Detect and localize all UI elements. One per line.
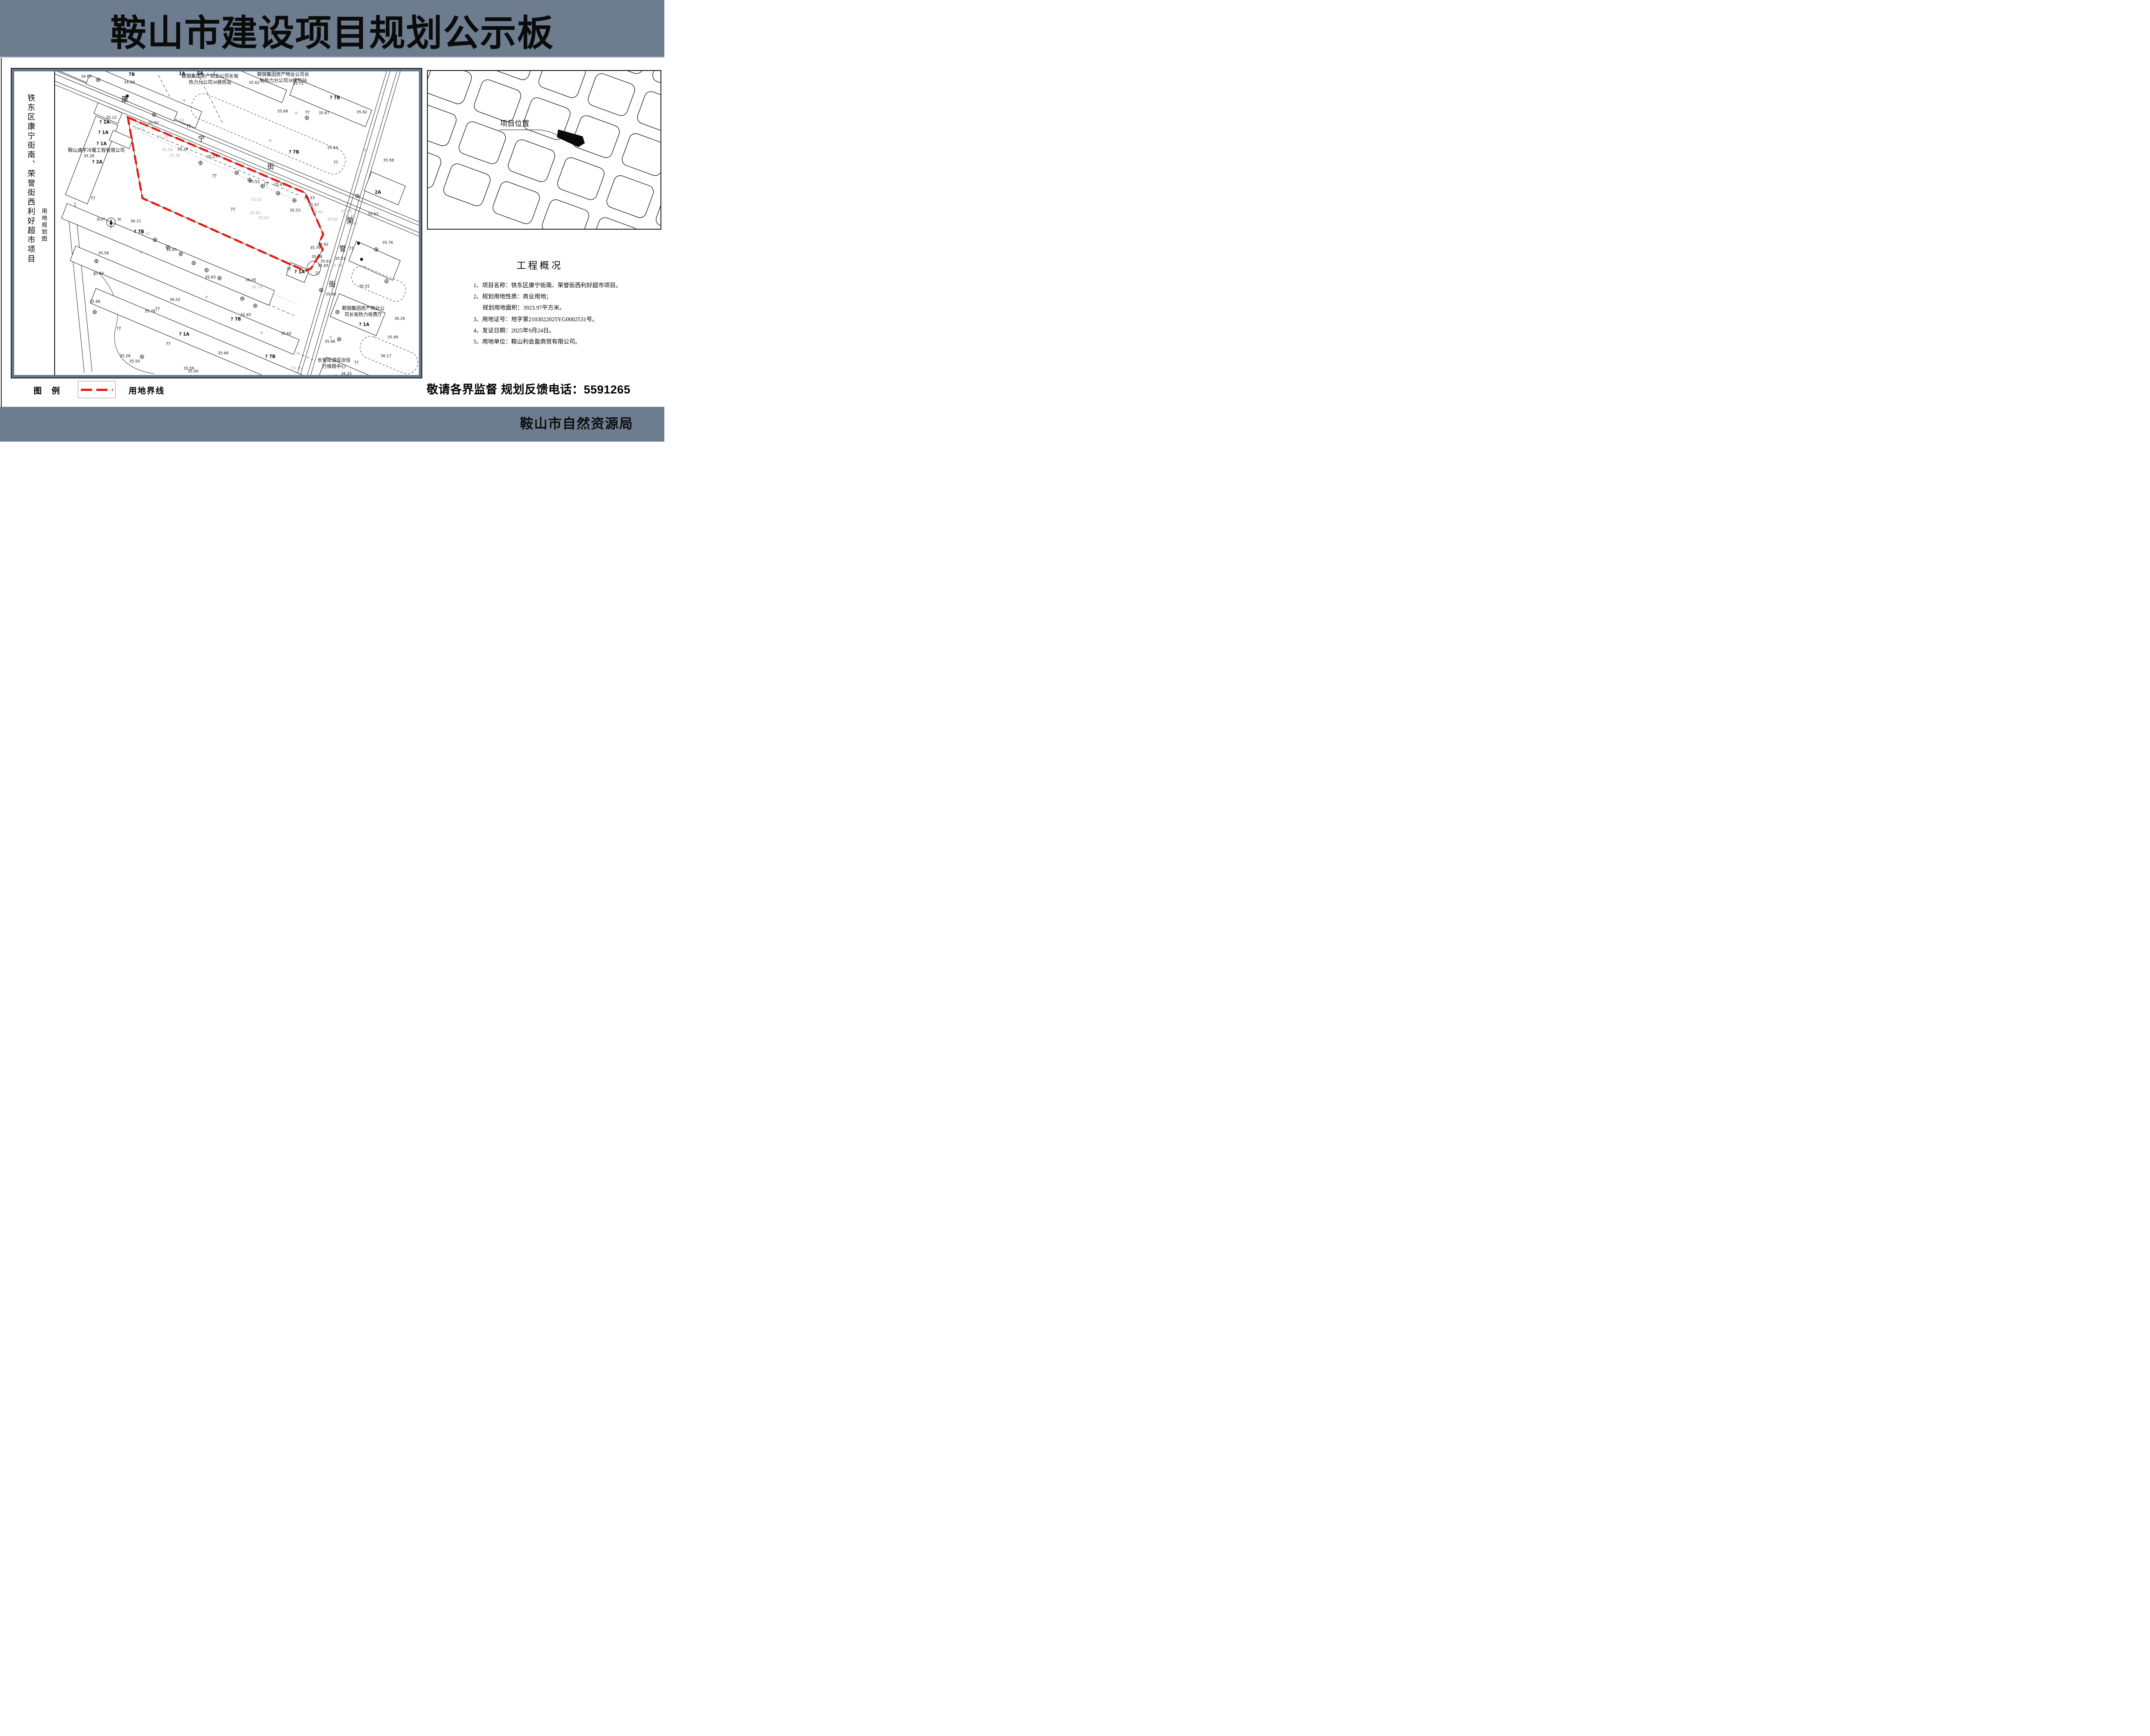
agency-name: 鞍山市自然资源局 xyxy=(520,413,633,432)
street-name-char: 宁 xyxy=(198,135,205,143)
elevation-label: 35.28 xyxy=(162,148,172,152)
unreadable-mark: ?? xyxy=(333,161,338,166)
unreadable-mark: ?? xyxy=(315,271,320,276)
circle-cross-icon xyxy=(96,78,100,82)
street-name-char: 康 xyxy=(121,95,128,103)
circle-cross-icon xyxy=(292,199,296,203)
benchmark-icon xyxy=(360,258,363,261)
project-location-label: 项目位置 xyxy=(500,120,529,128)
elevation-label: 35.70 xyxy=(291,366,302,371)
elevation-label: 34.89 xyxy=(124,80,135,85)
elevation-label: 35.84 xyxy=(93,271,104,276)
legend-title: 图 例 xyxy=(34,384,61,396)
building-unit-label: ? 7B xyxy=(289,150,299,155)
lamp-icon: Ψ xyxy=(329,335,332,340)
elevation-label: 35.58 xyxy=(312,255,322,259)
circle-cross-icon xyxy=(375,248,378,252)
circle-cross-icon xyxy=(199,161,202,165)
elevation-label: 35.12 xyxy=(106,116,117,120)
elevation-label: 35.47 xyxy=(274,183,285,187)
elevation-label: 35.27 xyxy=(206,155,217,159)
elevation-label: 35.67 xyxy=(319,111,329,116)
elevation-label: 36.19 xyxy=(252,285,262,289)
cadastral-map-svg: ΨΨΨΨΨΨΨΨΨΨ3836.0734.6934.8935.1235.0235.… xyxy=(55,71,419,375)
building-unit-label: 2A xyxy=(375,190,381,195)
project-name-vertical: 铁东区康宁街南、荣誉街西利好超市项目 xyxy=(25,94,37,274)
elevation-label: 35.61 xyxy=(320,259,331,264)
building-unit-label: ? 1A xyxy=(98,130,108,135)
building-unit-label: ? 1A xyxy=(179,332,189,337)
elevation-label: 35.57 xyxy=(308,203,319,207)
elevation-label: 35.60 xyxy=(327,218,338,222)
plan-sheet: 铁东区康宁街南、荣誉街西利好超市项目 用地规划图 ΨΨΨΨΨΨΨΨΨΨ3836.… xyxy=(14,71,419,375)
elevation-label: 35.52 xyxy=(368,212,378,216)
circle-cross-icon xyxy=(205,268,208,272)
unreadable-mark: ?? xyxy=(349,246,353,251)
circle-cross-icon xyxy=(153,238,157,242)
facility-name-label: 热力分公司3#换热站 xyxy=(189,79,231,85)
building-unit-label: ? 7B xyxy=(134,230,144,234)
unreadable-mark: ?? xyxy=(155,307,160,312)
elevation-label: 35.76 xyxy=(382,241,393,245)
elevation-label: 35.99 xyxy=(387,335,398,340)
circle-cross-icon xyxy=(152,113,156,117)
boundary-dash-icon xyxy=(81,389,113,391)
elevation-label: 35.78 xyxy=(144,310,155,314)
unreadable-mark: ?? xyxy=(305,111,310,116)
lamp-icon: Ψ xyxy=(140,250,143,255)
building-unit-label: ? 6B xyxy=(328,375,338,375)
circle-cross-icon xyxy=(95,259,98,263)
elevation-label: 35.18 xyxy=(177,147,188,152)
elevation-label: 35.40 xyxy=(326,292,336,297)
svg-text:38: 38 xyxy=(117,217,121,221)
elevation-label: 35.59 xyxy=(183,366,194,371)
facility-name-label: 鞍钢集团房产物业公 xyxy=(342,305,384,311)
overview-line-5: 4、发证日期：2025年9月24日。 xyxy=(473,325,658,336)
elevation-label: 36.25 xyxy=(341,372,352,375)
elevation-label: 36.17 xyxy=(381,354,391,358)
elevation-label: 35.48 xyxy=(89,300,100,304)
elevation-label: 35.85 xyxy=(240,313,251,317)
elevation-label: 35.65 xyxy=(318,264,329,268)
overview-line-2: 2、规划用地性质：商业用地； xyxy=(473,291,658,302)
building-unit-label: ? 1A xyxy=(295,270,305,274)
title-banner: 鞍山市建设项目规划公示板 xyxy=(0,0,664,57)
lamp-icon: Ψ xyxy=(205,295,208,299)
elevation-label: 35.49 xyxy=(341,209,352,214)
lamp-icon: Ψ xyxy=(260,331,263,335)
overview-heading: 工程概况 xyxy=(426,258,654,272)
elevation-label: 35.15 xyxy=(134,127,144,131)
elevation-label: 35.28 xyxy=(83,154,94,158)
svg-text:36.07: 36.07 xyxy=(96,217,105,221)
elevation-label: 35.33 xyxy=(304,196,315,200)
circle-cross-icon xyxy=(385,280,388,283)
elevation-label: 35.50 xyxy=(129,359,140,364)
elevation-label: 36.05 xyxy=(246,278,256,283)
lamp-icon: Ψ xyxy=(183,98,186,103)
circle-cross-icon xyxy=(179,252,182,256)
elevation-label: 34.69 xyxy=(81,74,92,79)
facility-name-label: 司长甸热力收费厅 xyxy=(344,311,382,317)
overview-line-4: 3、用地证号：地字第2103022025YG0002531号。 xyxy=(473,314,658,325)
elevation-label: 36.26 xyxy=(394,316,405,321)
circle-cross-icon xyxy=(140,355,144,359)
circle-cross-icon xyxy=(276,191,279,195)
elevation-label: 35.60 xyxy=(250,211,261,215)
street-name-char: 街 xyxy=(267,162,274,170)
street-name-char: 誉 xyxy=(339,244,346,252)
cadastral-map: ΨΨΨΨΨΨΨΨΨΨ3836.0734.6934.8935.1235.0235.… xyxy=(55,71,419,375)
supervision-hotline: 敬请各界监督 规划反馈电话：5591265 xyxy=(427,380,662,397)
building-unit-label: ? 1A xyxy=(96,141,107,146)
circle-cross-icon xyxy=(336,310,339,314)
elevation-label: 36.02 xyxy=(169,298,180,302)
unreadable-mark: ?? xyxy=(186,124,191,129)
street-name-char: 街 xyxy=(329,280,336,288)
plan-title-strip: 铁东区康宁街南、荣誉街西利好超市项目 用地规划图 xyxy=(14,71,55,375)
lamp-icon: Ψ xyxy=(295,111,298,116)
unreadable-mark: ?? xyxy=(91,197,95,201)
elevation-label: 35.53 xyxy=(290,209,301,213)
building-unit-label: ? 7B xyxy=(265,354,276,359)
facility-name-label: 鞍山通宇冷暖工程有限公司 xyxy=(68,147,125,153)
elevation-label: 35.62 xyxy=(313,210,323,215)
lamp-icon: Ψ xyxy=(269,139,272,143)
elevation-label: 35.58 xyxy=(383,159,394,163)
elevation-label: 35.62 xyxy=(318,243,329,247)
elevation-label: 35.85 xyxy=(166,248,177,252)
elevation-label: 35.68 xyxy=(277,109,288,114)
sheet-type-label: 用地规划图 xyxy=(40,208,48,247)
building-unit-label: ? 2A xyxy=(92,160,102,165)
unreadable-mark: ?? xyxy=(166,342,171,347)
facility-name-label: 鞍钢集团房产物业公司长甸 xyxy=(181,73,238,79)
elevation-label: 35.36 xyxy=(169,154,180,158)
benchmark-icon xyxy=(357,242,360,245)
elevation-label: 35.64 xyxy=(327,146,338,151)
legend-swatch-box xyxy=(78,381,116,398)
elevation-label: 35.58 xyxy=(98,252,109,256)
circle-cross-icon xyxy=(356,194,359,198)
circle-cross-icon xyxy=(338,338,341,341)
building-unit-label: 7B xyxy=(129,72,135,77)
location-map-panel: 项目位置 xyxy=(427,70,661,230)
circle-cross-icon xyxy=(253,304,257,308)
elevation-label: 35.62 xyxy=(249,81,260,85)
elevation-label: 35.51 xyxy=(251,198,262,202)
elevation-label: 35.65 xyxy=(281,332,292,336)
facility-name-label: 长甸街道综治信 xyxy=(317,357,350,363)
legend-boundary-label: 用地界线 xyxy=(129,384,165,396)
elevation-label: 35.86 xyxy=(325,340,335,344)
overview-list: 1、项目名称：铁东区康宁街南、荣誉街西利好超市项目。 2、规划用地性质：商业用地… xyxy=(473,280,658,347)
elevation-label: 35.83 xyxy=(205,276,215,280)
facility-name-label: 行维稳中心 xyxy=(322,363,346,369)
elevation-label: 35.19 xyxy=(173,118,184,123)
circle-cross-icon xyxy=(319,288,323,292)
circle-cross-icon xyxy=(240,297,244,301)
overview-line-1: 1、项目名称：铁东区康宁街南、荣誉街西利好超市项目。 xyxy=(473,280,658,291)
lamp-icon: Ψ xyxy=(364,148,367,153)
overview-line-6: 5、用地单位：鞍山利会盈商贸有限公司。 xyxy=(473,336,658,347)
lamp-icon: Ψ xyxy=(319,179,322,183)
unreadable-mark: ?? xyxy=(286,267,291,272)
location-map-svg: 项目位置 xyxy=(428,71,660,229)
facility-name-label: 甸热力分公司3#换热站 xyxy=(260,77,307,83)
elevation-label: 35.48 xyxy=(332,264,342,268)
unreadable-mark: ?? xyxy=(230,208,235,212)
page-left-border xyxy=(1,58,2,407)
elevation-label: 35.28 xyxy=(120,354,130,358)
circle-cross-icon xyxy=(218,276,221,280)
land-use-plan-panel: 铁东区康宁街南、荣誉街西利好超市项目 用地规划图 ΨΨΨΨΨΨΨΨΨΨ3836.… xyxy=(11,68,422,378)
street-grid xyxy=(428,71,660,229)
unreadable-mark: ?? xyxy=(117,327,121,332)
building-unit-label: ? 7B xyxy=(231,317,241,322)
overview-line-3: 规划用地面积：3923.97平方米。 xyxy=(473,302,658,313)
circle-cross-icon xyxy=(93,310,96,314)
elevation-label: 35.52 xyxy=(359,284,370,289)
circle-cross-icon xyxy=(305,116,308,120)
building-unit-label: ? 7B xyxy=(330,95,340,100)
elevation-label: 35.14 xyxy=(135,122,145,126)
unreadable-mark: ?? xyxy=(212,174,217,179)
unreadable-mark: ?? xyxy=(264,182,268,187)
elevation-label: 36.11 xyxy=(130,219,141,224)
elevation-label: 35.10 xyxy=(157,135,168,140)
elevation-label: 35.53 xyxy=(249,180,260,184)
street-name-char: 荣 xyxy=(347,217,353,225)
elevation-label: 35.51 xyxy=(335,257,346,261)
building-unit-label: ? 1A xyxy=(359,323,369,327)
circle-cross-icon xyxy=(235,171,238,175)
elevation-label: 35.66 xyxy=(218,351,228,356)
building-unit-label: ? 1A xyxy=(99,120,110,125)
circle-cross-icon xyxy=(192,261,195,265)
header-divider xyxy=(0,57,664,58)
page-title: 鞍山市建设项目规划公示板 xyxy=(0,4,664,56)
facility-name-label: 鞍钢集团房产物业公司长 xyxy=(257,71,309,77)
elevation-label: 35.02 xyxy=(148,121,159,125)
unreadable-mark: ?? xyxy=(354,361,359,366)
footer-banner: 鞍山市自然资源局 xyxy=(0,407,664,442)
elevation-label: 35.63 xyxy=(258,216,269,221)
elevation-label: 35.82 xyxy=(356,110,367,114)
